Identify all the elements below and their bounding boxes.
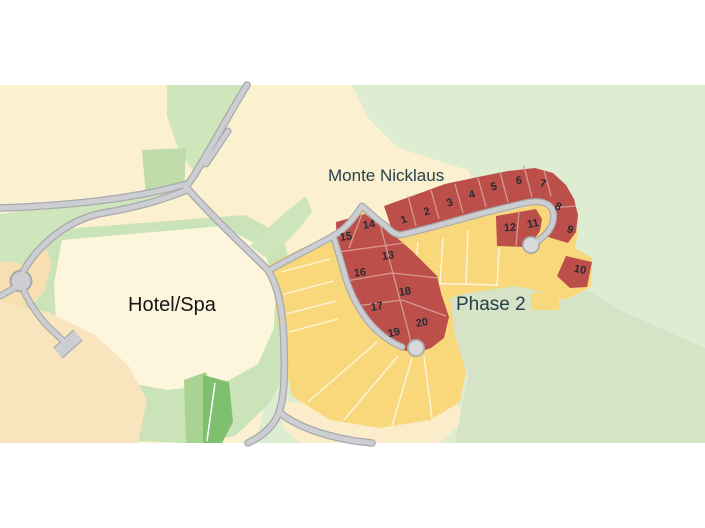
site-plan-map: Monte Nicklaus Hotel/Spa Phase 2 1234567… xyxy=(0,0,705,528)
development-name-label: Monte Nicklaus xyxy=(328,166,444,185)
lot-number-18: 18 xyxy=(398,285,412,299)
lot-number-12: 12 xyxy=(503,222,516,235)
site-plan-screenshot: Monte Nicklaus Hotel/Spa Phase 2 1234567… xyxy=(0,0,705,528)
lot-number-10: 10 xyxy=(573,263,587,277)
lot-number-20: 20 xyxy=(415,316,429,330)
cul-de-sac-south xyxy=(409,341,424,356)
roundabout xyxy=(12,272,31,291)
lot-number-16: 16 xyxy=(353,266,366,279)
hotel-spa-label: Hotel/Spa xyxy=(128,294,217,316)
lot-number-19: 19 xyxy=(387,326,401,340)
lot-number-11: 11 xyxy=(526,217,540,231)
lot-number-17: 17 xyxy=(370,300,384,314)
cul-de-sac-north xyxy=(524,238,539,253)
phase2-label: Phase 2 xyxy=(456,294,526,315)
phase2-legend-swatch xyxy=(531,293,559,310)
lot-number-13: 13 xyxy=(381,249,395,263)
lot-number-15: 15 xyxy=(339,230,353,244)
